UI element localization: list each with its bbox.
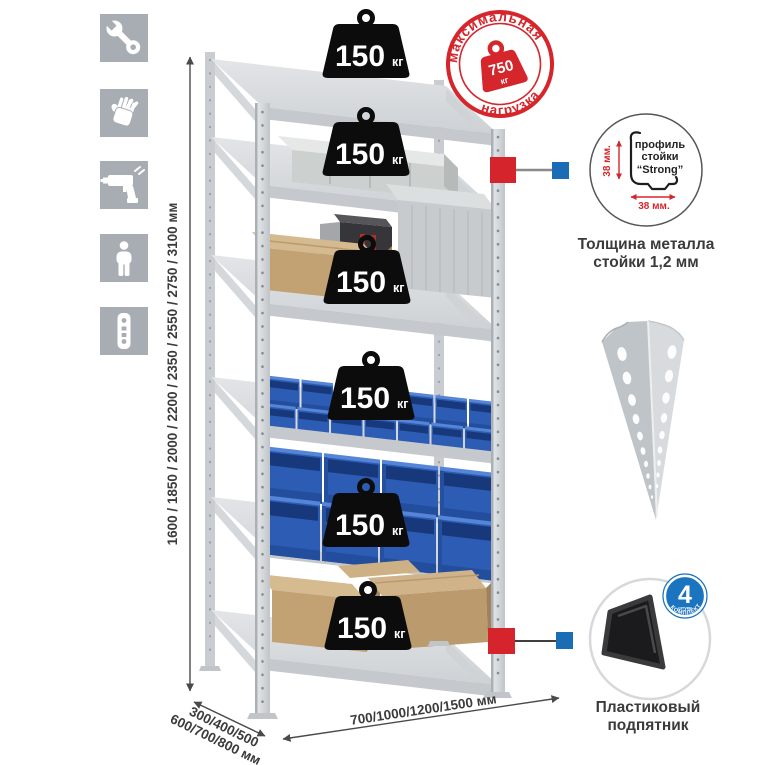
width-dimension: 700/1000/1200/1500 мм (283, 691, 559, 739)
width-dimension-label: 700/1000/1200/1500 мм (349, 691, 497, 728)
height-dimension: 1600 / 1850 / 2000 / 2200 / 2350 / 2550 … (165, 57, 190, 691)
badge-unit: кг (394, 627, 405, 641)
product-infographic: 1600 / 1850 / 2000 / 2200 / 2350 / 2550 … (0, 0, 765, 765)
shelf-load-badge: 150кг (323, 12, 410, 79)
drill-icon (100, 161, 148, 209)
connector-marker-red (488, 628, 515, 654)
connector-marker-blue (556, 632, 573, 649)
foot-caption-line1: Пластиковый (596, 699, 701, 716)
connector-marker-blue (552, 162, 569, 179)
connector-marker-red (490, 157, 516, 183)
profile-caption-line1: Толщина металла (578, 236, 715, 253)
profile-width-dim: 38 мм. (638, 201, 670, 212)
profile-label-3: “Strong” (637, 164, 683, 176)
badge-unit: кг (392, 55, 403, 69)
infographic-svg: 1600 / 1850 / 2000 / 2200 / 2350 / 2550 … (0, 0, 765, 765)
foot-connector (488, 628, 573, 654)
depth-dimension: 300/400/500 600/700/800 мм (168, 698, 270, 765)
badge-unit: кг (392, 524, 403, 538)
post-profile-detail: 38 мм. 38 мм. профиль стойки “Strong” То… (578, 114, 715, 271)
gloves-icon (100, 89, 148, 137)
height-dimension-label: 1600 / 1850 / 2000 / 2200 / 2350 / 2550 … (165, 203, 180, 546)
wrench-icon (100, 14, 148, 62)
post-angle-image (602, 321, 684, 520)
profile-label-2: стойки (641, 151, 678, 163)
badge-value: 150 (335, 40, 385, 73)
shelf-load-badge: 150кг (328, 354, 415, 421)
profile-connector (490, 157, 569, 183)
badge-value: 150 (337, 612, 387, 645)
profile-caption-line2: стойки 1,2 мм (593, 254, 698, 271)
badge-value: 150 (335, 509, 385, 542)
profile-height-dim: 38 мм. (602, 145, 613, 177)
badge-value: 150 (335, 138, 385, 171)
badge-value: 150 (336, 266, 386, 299)
badge-unit: кг (392, 153, 403, 167)
badge-unit: кг (393, 281, 404, 295)
badge-value: 150 (340, 382, 390, 415)
badge-unit: кг (397, 397, 408, 411)
perforated-post-icon (100, 307, 148, 355)
person-icon (100, 234, 148, 282)
profile-label-1: профиль (635, 139, 685, 151)
sidebar-icons (100, 14, 148, 355)
foot-caption-line2: подпятник (607, 717, 688, 734)
